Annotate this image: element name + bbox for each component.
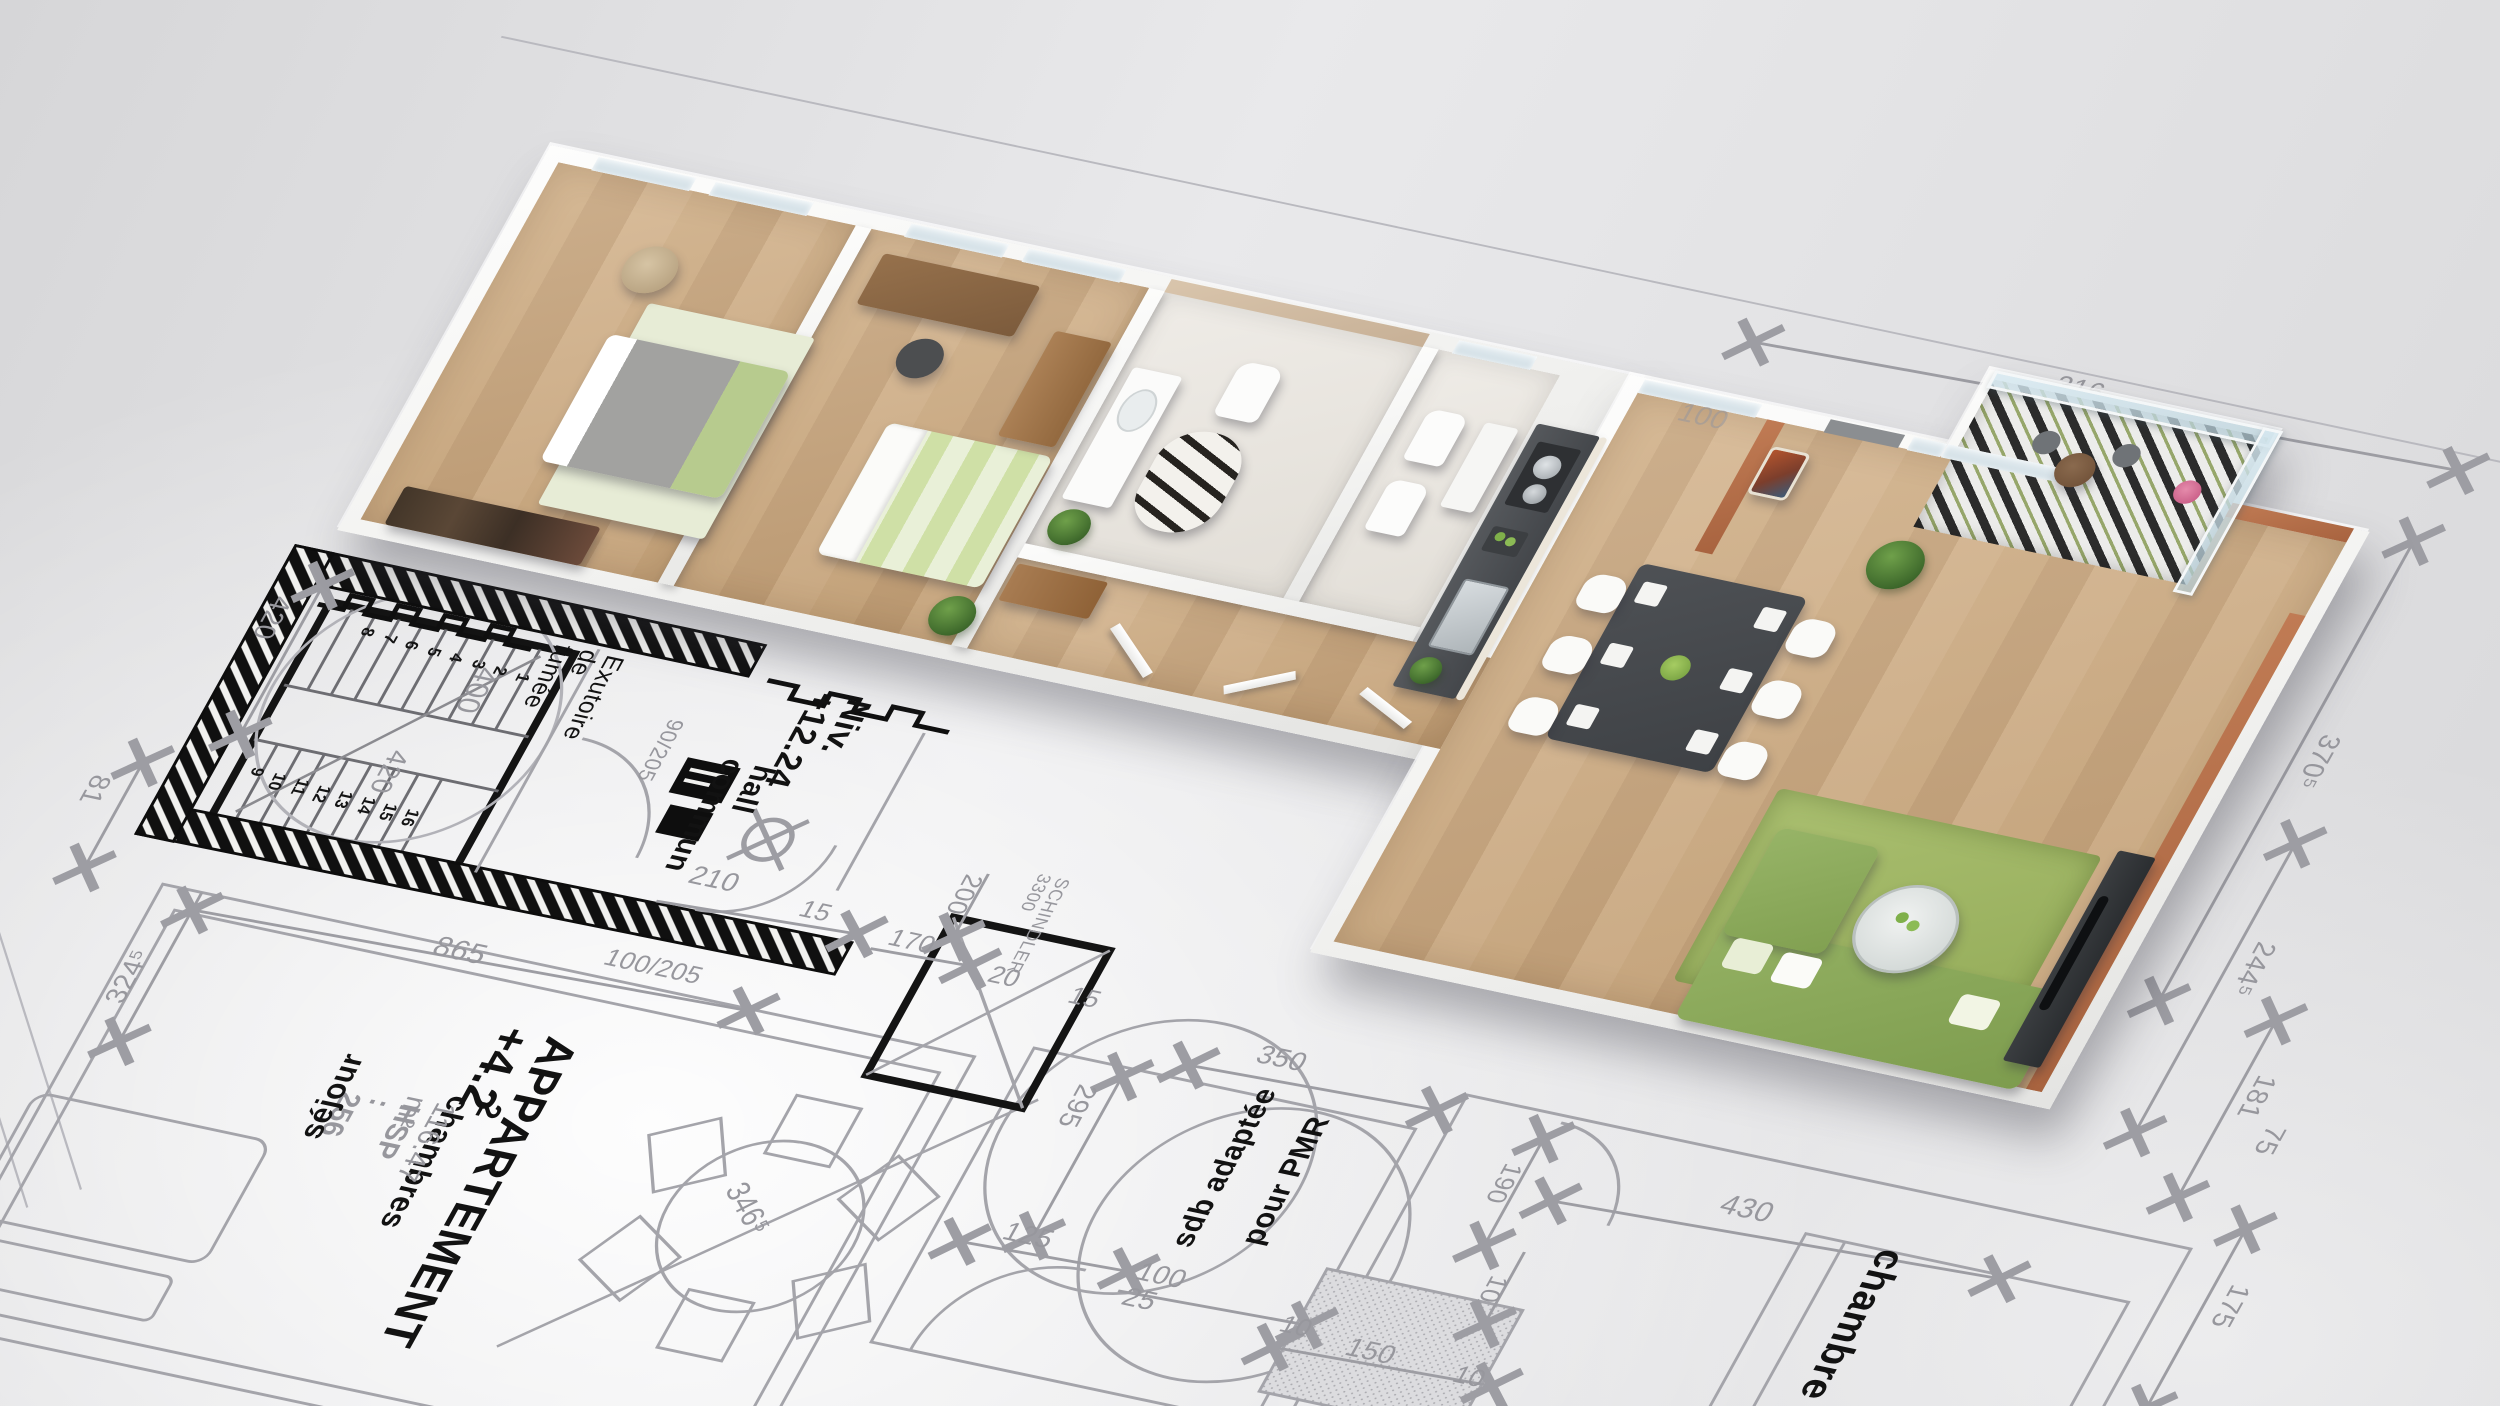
floorplan-scene: APPARTEMENT +4.2 2 chambres 116.47 m² HS… [0, 0, 2500, 1406]
